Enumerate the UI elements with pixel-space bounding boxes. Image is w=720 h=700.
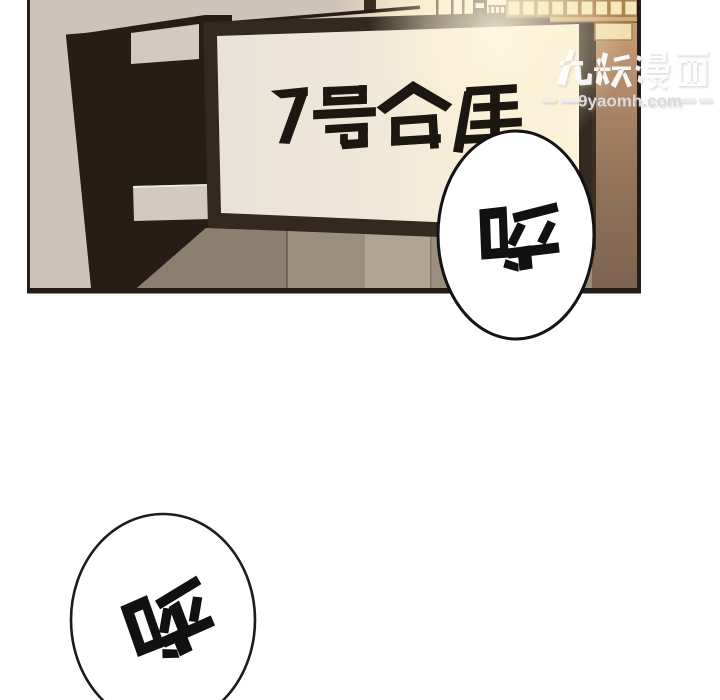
svg-text:9yaomh.com: 9yaomh.com [578, 92, 682, 111]
